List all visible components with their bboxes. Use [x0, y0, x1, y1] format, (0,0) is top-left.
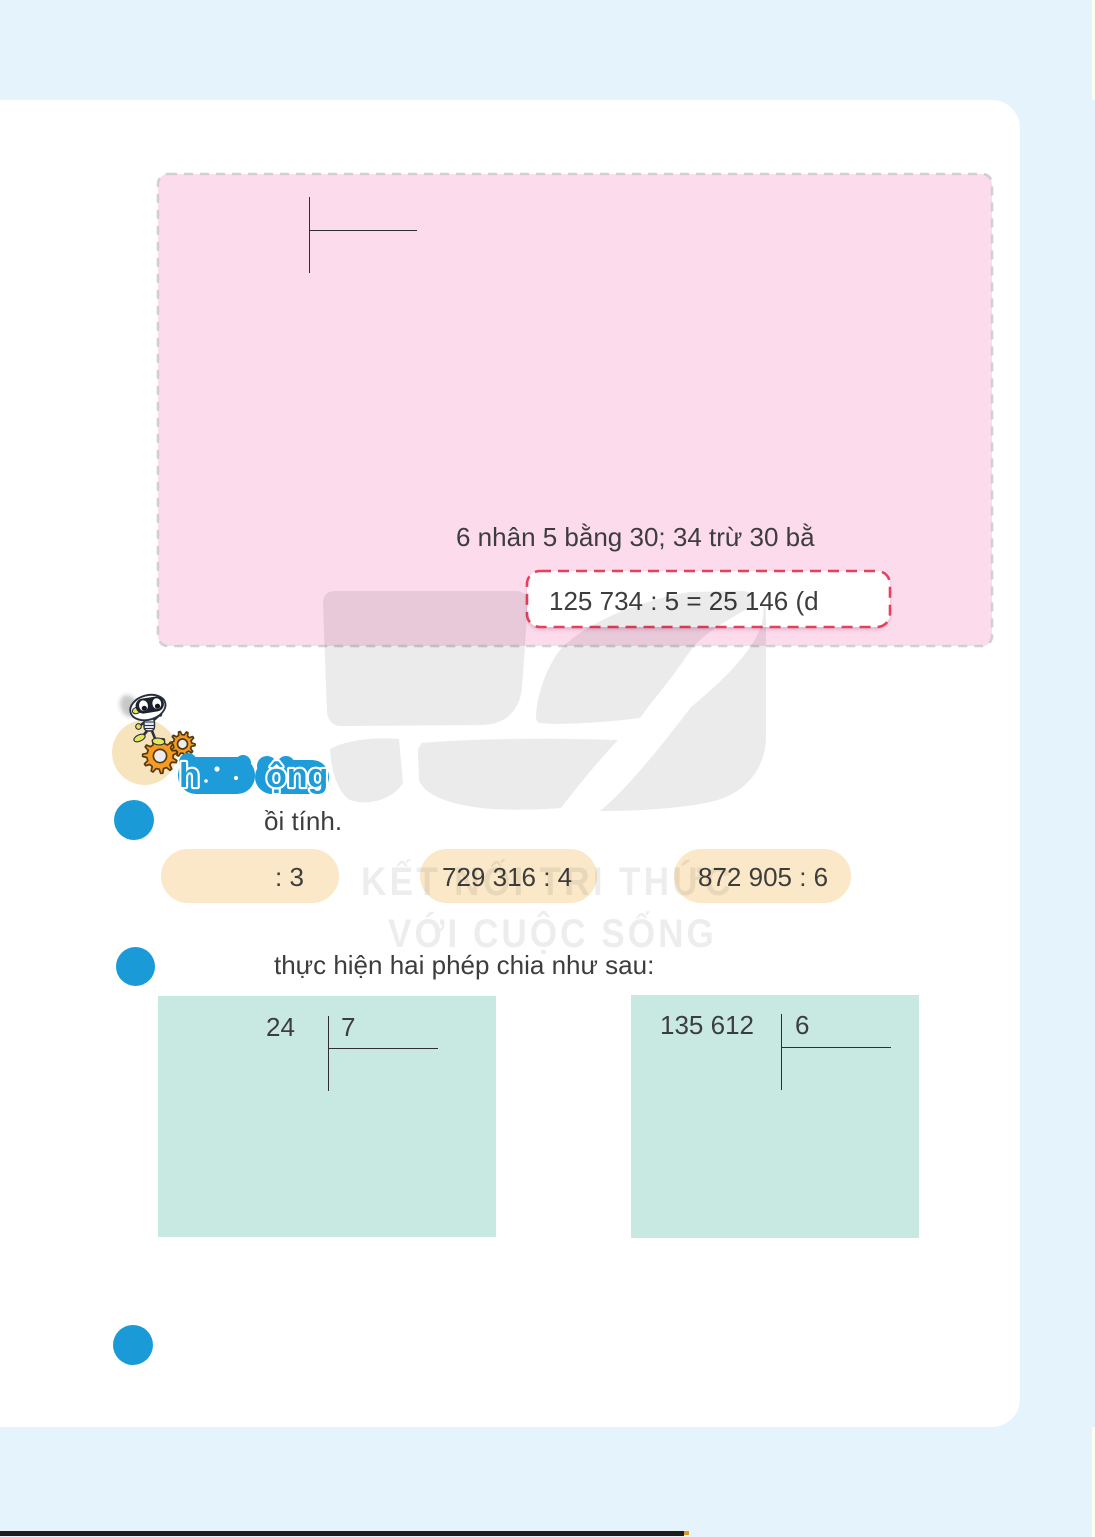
svg-text:ộng: ộng: [266, 757, 328, 795]
svg-text:h: h: [179, 757, 200, 795]
